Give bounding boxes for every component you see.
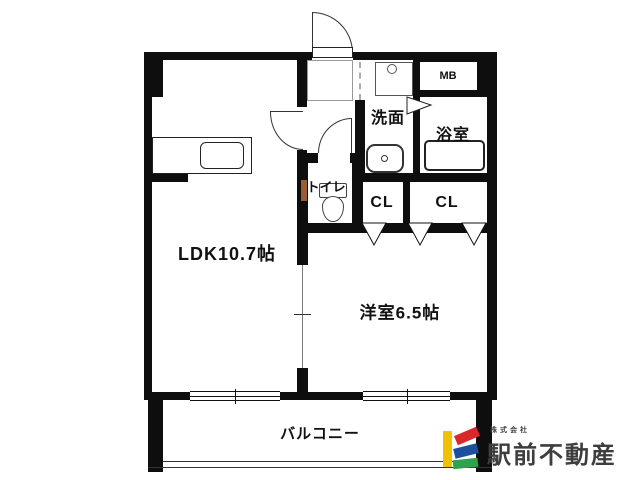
washing-machine-drain-circle [387, 64, 397, 74]
room-partition-tick [294, 314, 311, 315]
left-wall [144, 52, 152, 400]
logo-blue-bar-icon [453, 443, 479, 459]
top-wall-left [144, 52, 312, 60]
room-partition-line [302, 265, 303, 368]
closet-divider-wall [403, 182, 410, 223]
logo-company-name: 駅前不動産 [487, 435, 617, 470]
toilet-right-wall [352, 153, 363, 233]
toilet-door-swing-arc [318, 118, 352, 153]
balcony-edge-line-inner [163, 461, 475, 462]
ldk-balcony-window [190, 391, 280, 401]
bathroom-label: 浴室 [436, 121, 470, 145]
washroom-opening-dashed [359, 62, 361, 100]
toilet-left-wall [297, 153, 308, 265]
closet-left-bifold-icon [361, 222, 387, 247]
ldk-label: LDK10.7帖 [178, 240, 276, 266]
window-center-tick [235, 389, 236, 404]
left-wall-corner-block [144, 52, 163, 97]
balcony-edge-line-outer [148, 467, 492, 468]
kitchen-sink [200, 142, 244, 169]
western-room-label: 洋室6.5帖 [360, 299, 441, 324]
logo-yellow-bar-icon [443, 431, 452, 467]
closet-right-label: CL [435, 194, 458, 212]
closet-left-label: CL [370, 194, 393, 212]
entrance-door-sill [312, 47, 353, 58]
wash-basin-drain [381, 155, 388, 162]
entrance-step-area [307, 60, 353, 101]
window-center-tick [407, 389, 408, 404]
ldk-door-swing-arc [270, 112, 303, 150]
closet-right-bifold-icon-2 [461, 222, 487, 247]
balcony-left-wall [148, 392, 163, 472]
washroom-label: 洗面 [371, 104, 405, 128]
bottom-wall-segment-middle [280, 392, 363, 400]
toilet-label: トイレ [306, 177, 345, 196]
western-room-balcony-window [363, 391, 450, 401]
meter-box-label: MB [439, 70, 456, 82]
logo-company-prefix: 株式会社 [490, 425, 530, 435]
kitchen-wall-stub [144, 173, 188, 182]
toilet-top-wall-left [297, 153, 318, 163]
floorplan-image: LDK10.7帖 洋室6.5帖 バルコニー 洗面 浴室 トイレ CL CL MB… [0, 0, 640, 480]
closet-right-bifold-icon-1 [407, 222, 433, 247]
bathroom-door-triangle [406, 95, 434, 116]
balcony-label: バルコニー [280, 423, 360, 444]
hall-ldk-wall-upper [297, 60, 307, 107]
toilet-bowl [322, 196, 344, 222]
closet-top-wall [352, 173, 497, 182]
